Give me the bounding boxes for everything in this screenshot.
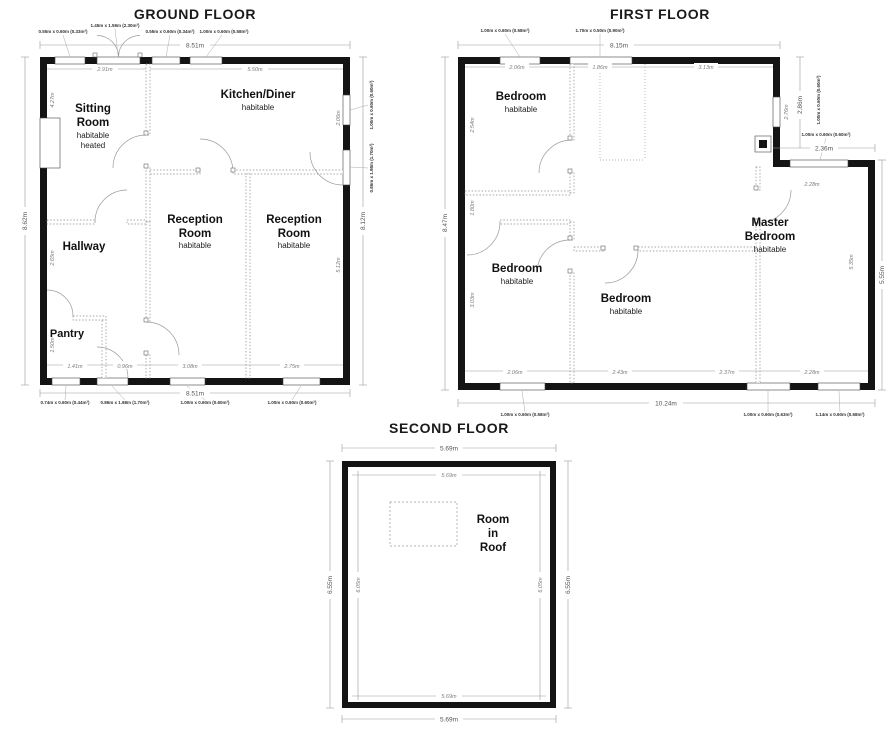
ground-window-top-3	[190, 57, 222, 64]
room-label-reception2-line2: Room	[278, 228, 311, 240]
room-label-reception1-line2: Room	[179, 228, 212, 240]
second-dim-left: 6.55m	[327, 576, 334, 594]
room-label-bedroom1: Bedroom	[496, 91, 546, 103]
room-label-bedroom2: Bedroom	[492, 263, 542, 275]
ground-window-bottom-1	[52, 378, 80, 385]
ground-dim-top: 8.51m	[186, 43, 204, 50]
ground-door-bottom	[97, 378, 128, 385]
boiler-icon	[759, 140, 767, 148]
second-dim-bottom: 5.69m	[440, 717, 458, 724]
first-dim-right: 5.55m	[879, 266, 886, 284]
ground-inner-dim-sitting-height: 4.27m	[50, 92, 56, 108]
ground-inner-dim-hall-width: 0.96m	[117, 364, 133, 370]
ground-window-label-top-3: 0.55m x 0.60m (0.34m²)	[145, 29, 195, 34]
first-window-notch-horizontal	[790, 160, 848, 167]
first-window-top-1	[500, 57, 540, 64]
room-label-hallway: Hallway	[63, 241, 106, 253]
ground-window-label-top-2: 1.45m x 1.59m (2.30m²)	[90, 23, 140, 28]
second-inner-dim-top: 5.69m	[441, 473, 457, 479]
first-inner-dim-top-2: 1.86m	[592, 65, 608, 71]
room-label-master-bedroom-line1: Master	[751, 217, 789, 229]
ground-window-top-2	[152, 57, 180, 64]
first-dim-left: 8.47m	[442, 214, 449, 232]
ground-window-bottom-3	[283, 378, 320, 385]
room-sub-bedroom1-habitable: habitable	[505, 105, 538, 114]
ground-dim-right: 8.12m	[360, 212, 367, 230]
room-sub-bedroom3-habitable: habitable	[610, 307, 643, 316]
second-dim-right: 6.55m	[565, 576, 572, 594]
first-floor-plan: FIRST FLOOR	[440, 6, 886, 417]
room-sub-sitting-heated: heated	[81, 141, 105, 150]
room-sub-bedroom2-habitable: habitable	[501, 277, 534, 286]
second-floor-title: SECOND FLOOR	[389, 420, 509, 436]
ground-fireplace-bay	[40, 118, 60, 168]
second-floor-walls	[342, 461, 556, 708]
roof-restricted-area	[390, 502, 457, 546]
ground-floor-plan: GROUND FLOOR	[20, 6, 374, 405]
first-inner-dim-top-3: 3.13m	[698, 65, 714, 71]
room-label-bedroom3: Bedroom	[601, 293, 651, 305]
ground-window-top-1	[55, 57, 85, 64]
first-dim-extension-top: 2.28m	[803, 182, 820, 188]
first-inner-dim-bottom-3: 2.37m	[718, 370, 735, 376]
first-inner-dim-top-1: 2.06m	[508, 65, 525, 71]
second-inner-dim-bottom: 5.69m	[441, 694, 457, 700]
first-inner-dim-left-2: 1.80m	[470, 200, 476, 216]
second-floor-plan: SECOND FLOOR 5.69m 5.69m 6.55m 6.55m 5.6…	[325, 420, 573, 724]
ground-window-label-top-4: 1.00m x 0.60m (0.58m²)	[199, 29, 249, 34]
ground-window-label-bottom-3: 1.00m x 0.60m (0.60m²)	[267, 400, 317, 405]
ground-door-label-bottom: 0.86m x 1.98m (1.70m²)	[100, 400, 150, 405]
second-inner-dim-right: 6.05m	[538, 577, 544, 593]
first-window-label-top-1: 1.00m x 0.60m (0.58m²)	[480, 28, 530, 33]
first-window-label-notch-vertical: 1.00m x 0.60m (0.60m²)	[816, 75, 821, 125]
first-inner-dim-left-3: 3.03m	[470, 292, 476, 308]
first-floor-door-arcs	[467, 136, 791, 283]
first-dim-notch-vertical: 2.86m	[797, 96, 804, 114]
second-inner-dim-left: 6.05m	[356, 577, 362, 593]
first-window-notch-vertical	[773, 97, 780, 127]
ground-floor-title: GROUND FLOOR	[134, 6, 256, 22]
room-label-master-bedroom-line2: Bedroom	[745, 231, 795, 243]
room-label-pantry: Pantry	[50, 328, 85, 340]
floorplan-drawing: GROUND FLOOR	[0, 0, 886, 731]
ground-door-label-right: 0.86m x 1.98m (1.70m²)	[369, 143, 374, 193]
ground-inner-dim-reception1-width: 3.08m	[182, 364, 198, 370]
second-dim-top: 5.69m	[440, 446, 458, 453]
first-dim-notch-inner: 2.76m	[784, 104, 790, 121]
ground-inner-dim-reception-height: 5.12m	[336, 257, 342, 273]
first-window-label-top-2: 1.70m x 0.50m (0.90m²)	[575, 28, 625, 33]
first-window-label-notch-horizontal: 1.00m x 0.60m (0.60m²)	[801, 132, 851, 137]
ground-dim-left: 8.62m	[22, 212, 29, 230]
ground-dim-bottom: 8.51m	[186, 391, 204, 398]
ground-front-door-opening	[97, 57, 140, 64]
first-inner-dim-bottom-4: 2.28m	[803, 370, 820, 376]
room-label-room-in-roof-line2: in	[488, 528, 498, 540]
room-label-kitchen-diner: Kitchen/Diner	[221, 89, 296, 101]
room-label-sitting-room-line2: Room	[77, 117, 110, 129]
ground-floor-door-arcs	[47, 36, 343, 379]
first-floor-title: FIRST FLOOR	[610, 6, 710, 22]
room-sub-reception1-habitable: habitable	[179, 241, 212, 250]
ground-window-label-bottom-2: 1.00m x 0.60m (0.60m²)	[180, 400, 230, 405]
first-dim-notch-horizontal: 2.36m	[815, 146, 833, 153]
first-inner-dim-bottom-2: 2.43m	[611, 370, 628, 376]
floorplan-page: GROUND FLOOR	[0, 0, 886, 731]
first-window-bottom-1	[500, 383, 545, 390]
room-sub-kitchen-habitable: habitable	[242, 103, 275, 112]
first-dim-bottom: 10.24m	[655, 401, 677, 408]
ground-inner-dim-hall-height: 2.65m	[50, 250, 56, 267]
room-label-room-in-roof-line3: Roof	[480, 542, 506, 554]
ground-window-bottom-2	[170, 378, 205, 385]
ground-window-right	[343, 95, 350, 125]
room-sub-reception2-habitable: habitable	[278, 241, 311, 250]
room-sub-sitting-habitable: habitable	[77, 131, 110, 140]
first-window-label-bottom-1: 1.00m x 0.60m (0.58m²)	[500, 412, 550, 417]
ground-window-label-bottom-1: 0.74m x 0.60m (0.44m²)	[40, 400, 90, 405]
first-inner-dim-master-height: 5.35m	[849, 254, 855, 270]
room-label-reception1-line1: Reception	[167, 214, 223, 226]
first-inner-dim-left-1: 2.54m	[470, 117, 476, 134]
room-label-sitting-room-line1: Sitting	[75, 103, 111, 115]
ground-inner-dim-kitchen-right: 2.06m	[336, 110, 342, 127]
ground-inner-dim-kitchen-width: 5.50m	[247, 67, 263, 73]
first-dim-top: 8.15m	[610, 43, 628, 50]
ground-inner-dim-pantry-width: 1.41m	[67, 364, 83, 370]
first-window-label-bottom-3: 1.14m x 0.60m (0.68m²)	[815, 412, 865, 417]
ground-door-right	[343, 150, 350, 185]
room-sub-master-habitable: habitable	[754, 245, 787, 254]
ground-window-label-top-1: 0.55m x 0.60m (0.33m²)	[38, 29, 88, 34]
room-label-room-in-roof-line1: Room	[477, 514, 510, 526]
ground-inner-dim-sitting-width: 2.91m	[96, 67, 113, 73]
first-window-top-2	[570, 57, 632, 64]
ground-window-label-right-1: 1.00m x 0.60m (0.60m²)	[369, 80, 374, 130]
first-window-label-bottom-2: 1.00m x 0.60m (0.63m²)	[743, 412, 793, 417]
first-window-bottom-3	[818, 383, 860, 390]
first-window-bottom-2	[747, 383, 790, 390]
first-inner-dim-bottom-1: 2.06m	[506, 370, 523, 376]
ground-inner-dim-reception2-width: 2.75m	[283, 364, 300, 370]
room-label-reception2-line1: Reception	[266, 214, 322, 226]
